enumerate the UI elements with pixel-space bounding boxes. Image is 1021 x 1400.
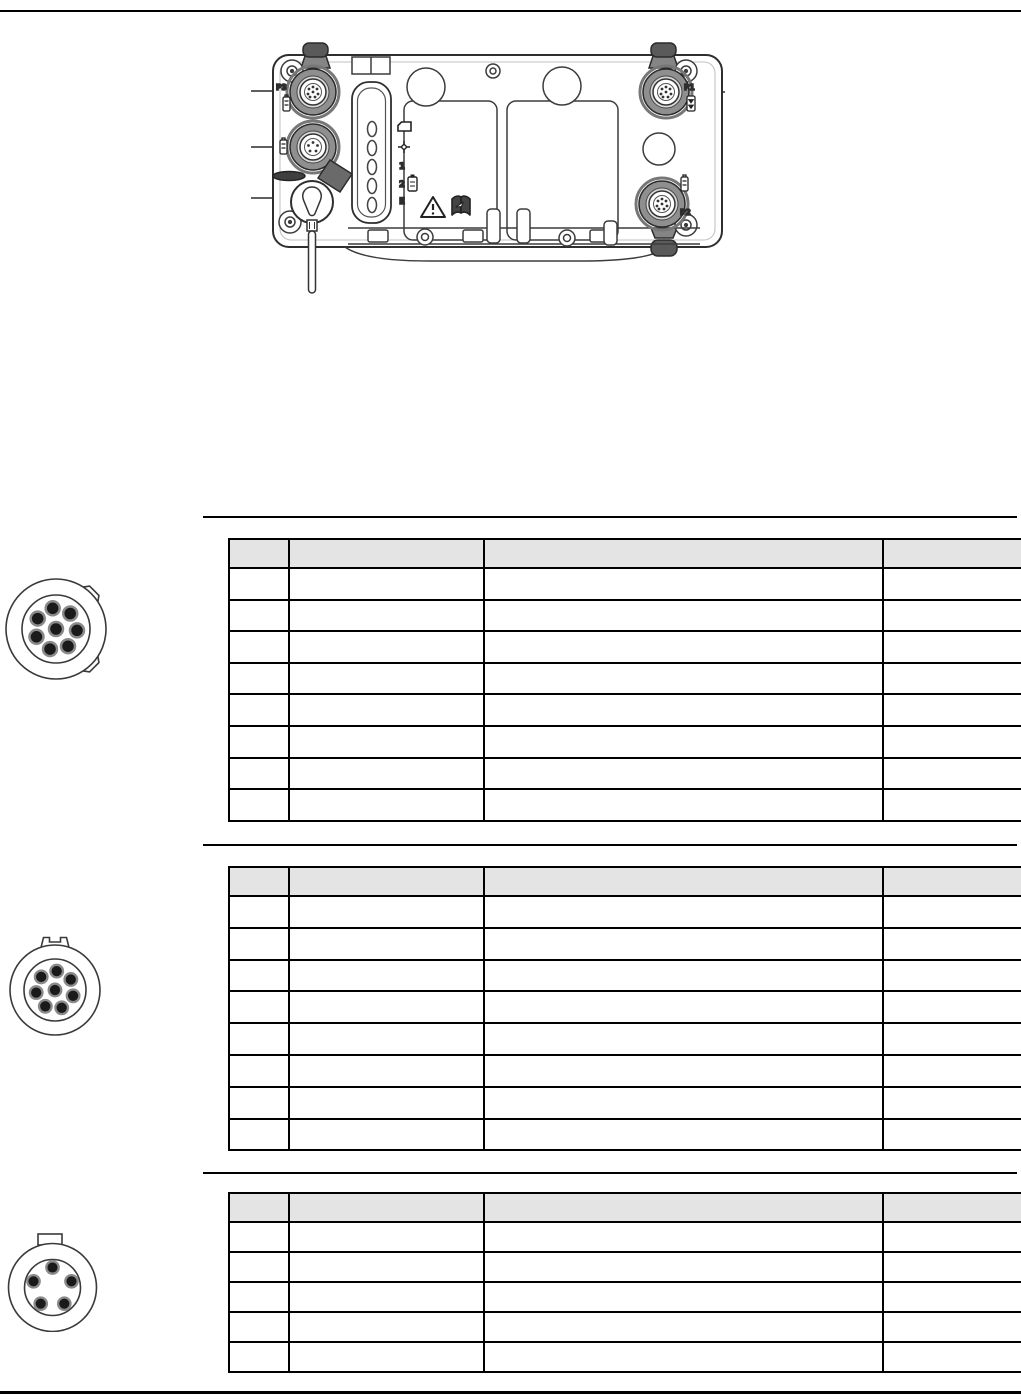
table-header-cell (229, 1193, 289, 1222)
table-header-cell (883, 867, 1021, 896)
table-cell (289, 960, 484, 992)
pole-clamp (301, 43, 330, 68)
pin-assignment-table (228, 866, 1021, 1151)
manual-page: 1 2 E (0, 0, 1021, 1400)
table-header-cell (484, 1193, 883, 1222)
table-cell (484, 1282, 883, 1312)
table-row (229, 1222, 1021, 1252)
connector-diagram-8pin-a (4, 577, 108, 681)
table-row (229, 991, 1021, 1023)
port-type-icon (681, 175, 688, 191)
pin-assignment-table (228, 1192, 1021, 1373)
table-header-cell (484, 539, 883, 568)
top-vent (352, 57, 390, 74)
table-row (229, 631, 1021, 663)
table-cell (229, 1252, 289, 1282)
table-cell (883, 758, 1021, 790)
table-cell (289, 1087, 484, 1119)
table-cell (289, 631, 484, 663)
table-row (229, 758, 1021, 790)
table-header-row (229, 867, 1021, 896)
table-cell (229, 1119, 289, 1151)
table-cell (289, 991, 484, 1023)
table-header-cell (229, 539, 289, 568)
table-cell (229, 726, 289, 758)
memory-card-icon (398, 122, 411, 131)
table-cell (484, 726, 883, 758)
port-p1-connector (640, 66, 692, 118)
table-header-cell (289, 1193, 484, 1222)
table-row (229, 1342, 1021, 1372)
table-row (229, 1119, 1021, 1151)
table-cell (289, 1342, 484, 1372)
table-cell (289, 663, 484, 695)
table-cell (883, 928, 1021, 960)
table-cell (484, 1222, 883, 1252)
table-cell (289, 896, 484, 928)
table-cell (883, 896, 1021, 928)
table-row (229, 600, 1021, 632)
table-cell (484, 928, 883, 960)
table-cell (289, 1312, 484, 1342)
table-row (229, 1312, 1021, 1342)
table-row (229, 1252, 1021, 1282)
read-manual-icon (452, 196, 470, 215)
port-type-icon (280, 138, 287, 154)
table-cell (289, 758, 484, 790)
table-cell (484, 960, 883, 992)
port-p2-connector (636, 178, 688, 230)
table-cell (229, 928, 289, 960)
table-cell (229, 1282, 289, 1312)
section-divider (203, 844, 1017, 846)
table-row (229, 663, 1021, 695)
table-header-row (229, 1193, 1021, 1222)
table-cell (484, 663, 883, 695)
section-divider (203, 516, 1017, 518)
table-cell (229, 1222, 289, 1252)
table-header-row (229, 539, 1021, 568)
table-cell (289, 1252, 484, 1282)
table-cell (883, 694, 1021, 726)
battery-icon (408, 175, 417, 192)
table-row (229, 568, 1021, 600)
pin-assignment-table (228, 538, 1021, 822)
port-type-icon (687, 96, 695, 111)
table-cell (289, 928, 484, 960)
port-label-p2: P2 (680, 208, 691, 217)
table-cell (484, 1342, 883, 1372)
table-row (229, 960, 1021, 992)
table-row (229, 1023, 1021, 1055)
table-cell (229, 758, 289, 790)
table-cell (883, 1222, 1021, 1252)
table-cell (229, 1055, 289, 1087)
table-cell (484, 789, 883, 821)
table-cell (883, 1055, 1021, 1087)
section-divider (203, 1172, 1017, 1174)
table-header-cell (883, 539, 1021, 568)
port-type-icon (283, 95, 290, 111)
table-cell (484, 758, 883, 790)
table-cell (484, 694, 883, 726)
table-cell (883, 991, 1021, 1023)
table-row (229, 928, 1021, 960)
table-cell (883, 1087, 1021, 1119)
port-p3-connector (287, 66, 339, 118)
table-cell (229, 960, 289, 992)
table-cell (484, 991, 883, 1023)
table-cell (883, 726, 1021, 758)
table-cell (229, 600, 289, 632)
table-cell (289, 789, 484, 821)
table-cell (289, 600, 484, 632)
table-cell (229, 1342, 289, 1372)
table-cell (229, 991, 289, 1023)
table-cell (229, 694, 289, 726)
cap-cord (309, 231, 316, 293)
table-cell (883, 1023, 1021, 1055)
led-label-e: E (399, 197, 405, 207)
table-cell (883, 789, 1021, 821)
connector-diagram-8pin-b (8, 936, 102, 1036)
table-header-cell (883, 1193, 1021, 1222)
table-cell (229, 896, 289, 928)
table-cell (229, 568, 289, 600)
port-label-p1: P1 (684, 83, 695, 92)
table-cell (484, 568, 883, 600)
table-cell (289, 1023, 484, 1055)
port-label-p3: P3 (276, 83, 287, 92)
table-header-cell (484, 867, 883, 896)
table-cell (484, 1023, 883, 1055)
led-label-1: 1 (399, 162, 405, 172)
table-cell (289, 568, 484, 600)
table-cell (484, 600, 883, 632)
table-cell (883, 1282, 1021, 1312)
led-label-2: 2 (399, 180, 405, 190)
table-cell (484, 631, 883, 663)
table-cell (484, 896, 883, 928)
table-row (229, 1055, 1021, 1087)
table-cell (484, 1055, 883, 1087)
table-header-cell (289, 539, 484, 568)
table-cell (289, 726, 484, 758)
table-cell (229, 789, 289, 821)
table-cell (289, 1282, 484, 1312)
pole-clamp (651, 228, 677, 256)
table-cell (883, 1252, 1021, 1282)
table-cell (289, 1222, 484, 1252)
table-cell (883, 960, 1021, 992)
table-cell (484, 1087, 883, 1119)
table-row (229, 896, 1021, 928)
table-row (229, 1282, 1021, 1312)
table-row (229, 789, 1021, 821)
table-cell (883, 663, 1021, 695)
table-cell (289, 694, 484, 726)
led-panel (352, 82, 391, 223)
table-cell (229, 663, 289, 695)
table-cell (484, 1312, 883, 1342)
table-cell (229, 1023, 289, 1055)
table-header-cell (289, 867, 484, 896)
connector-diagram-5pin (6, 1232, 100, 1332)
table-cell (883, 1312, 1021, 1342)
table-cell (883, 600, 1021, 632)
pole-clamp (649, 43, 678, 68)
table-cell (883, 631, 1021, 663)
table-cell (289, 1055, 484, 1087)
device-illustration: 1 2 E (245, 40, 737, 305)
table-cell (229, 1087, 289, 1119)
table-cell (484, 1119, 883, 1151)
table-row (229, 726, 1021, 758)
table-row (229, 694, 1021, 726)
table-cell (289, 1119, 484, 1151)
table-cell (229, 631, 289, 663)
table-cell (883, 568, 1021, 600)
table-cell (883, 1119, 1021, 1151)
table-row (229, 1087, 1021, 1119)
page-top-rule (0, 10, 1021, 12)
page-bottom-rule (0, 1391, 1021, 1394)
table-cell (484, 1252, 883, 1282)
table-cell (229, 1312, 289, 1342)
table-cell (883, 1342, 1021, 1372)
table-header-cell (229, 867, 289, 896)
